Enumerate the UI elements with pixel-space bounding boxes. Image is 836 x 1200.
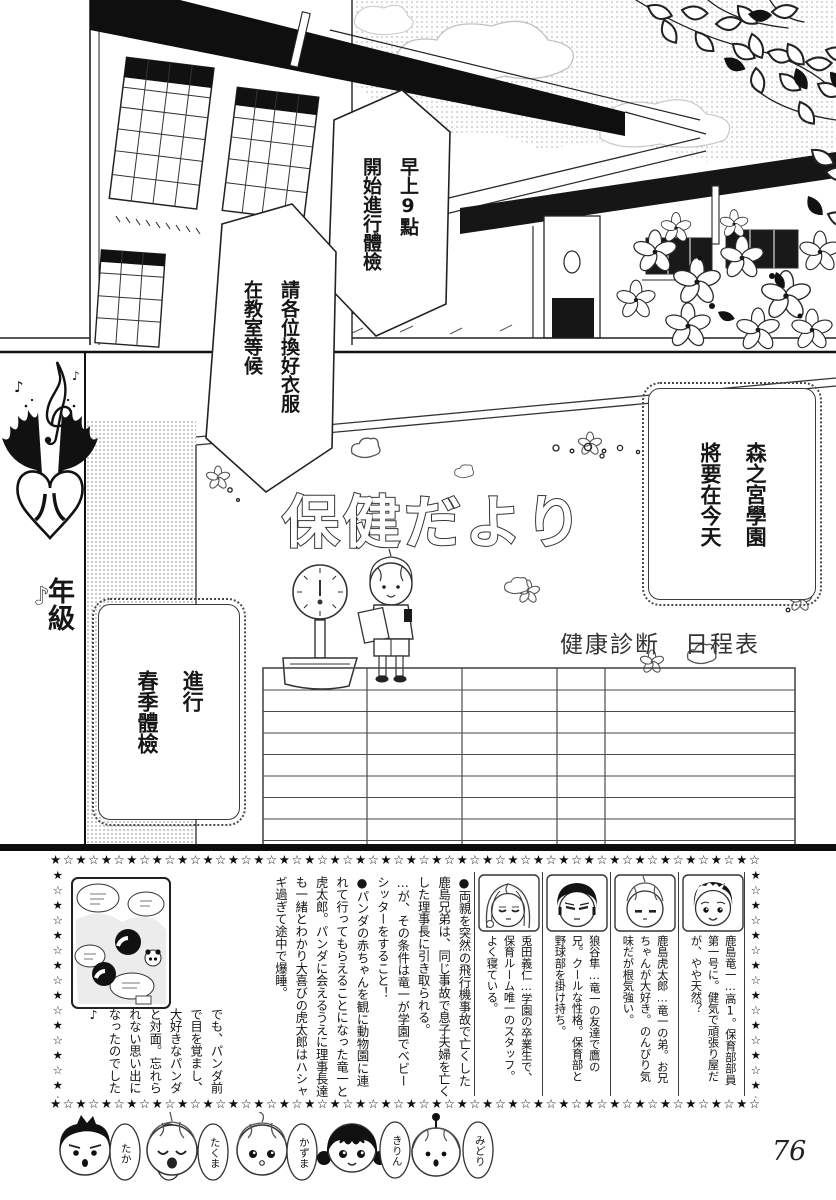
divider <box>610 872 611 1096</box>
profile-text: 鹿島虎太郎…竜一の弟。お兄ちゃんが大好き。のんびり気味だが根気強い。 <box>619 935 670 1087</box>
portrait-usaida <box>478 874 540 932</box>
wing-icon <box>2 410 42 474</box>
chibi-name-takuma: たくま <box>206 1124 222 1182</box>
profile-kashima-kotaro: 鹿島虎太郎…竜一の弟。お兄ちゃんが大好き。のんびり気味だが根気強い。 <box>612 872 678 1098</box>
divider <box>542 872 543 1096</box>
divider <box>474 872 475 1096</box>
caption-checkup-text: 進行 春季體檢 <box>124 670 214 754</box>
chibi-takuma <box>147 1112 197 1175</box>
bubble-instruction-text: 請各位換好衣服 在教室等候 <box>216 232 324 460</box>
portrait-ryuichi <box>682 874 744 932</box>
grade-number: 八 <box>34 488 67 526</box>
portrait-kotaro <box>614 874 676 932</box>
chibi-name-midori: みどり <box>471 1122 487 1180</box>
music-note-icon: ♪ <box>72 369 80 383</box>
chibi-name-taka: たか <box>117 1126 133 1180</box>
manga-page: 保健だより <box>0 0 836 1200</box>
speech-bubble-time: 早上9點 開始進行體檢 <box>324 86 454 341</box>
schedule-caption: 健康診断 日程表 <box>560 625 760 659</box>
star-border-bottom: ★☆★☆★☆★☆★☆★☆★☆★☆★☆★☆★☆★☆★☆★☆★☆★☆★☆★☆★☆★☆… <box>50 1096 762 1111</box>
star-border-right: ★☆★☆★☆★☆★☆★☆★☆★☆★☆ <box>748 868 762 1098</box>
child-illustration <box>358 549 413 683</box>
wing-icon <box>58 410 98 474</box>
page-number: 76 <box>772 1136 806 1167</box>
star-border-top: ★☆★☆★☆★☆★☆★☆★☆★☆★☆★☆★☆★☆★☆★☆★☆★☆★☆★☆★☆★☆… <box>50 852 762 867</box>
schedule-table <box>263 668 795 846</box>
music-note-icon: ♪ <box>14 378 24 396</box>
speech-bubble-instruction: 請各位換好衣服 在教室等候 <box>200 196 340 496</box>
profile-kamitani-hayato: 狼谷隼…竜一の友達で鷹の兄。クールな性格。保育部と野球部を掛け持ち。 <box>544 872 610 1098</box>
story-synopsis: ●両親を突然の飛行機事故で亡くした鹿島兄弟は、同じ事故で息子夫婦を亡くした理事長… <box>228 876 474 1098</box>
caption-checkup: 進行 春季體檢 <box>98 604 240 820</box>
profile-kashima-ryuichi: 鹿島竜一…高1。保育部部員第一号に。健気で頑張り屋だが、やや天然？ <box>680 872 746 1098</box>
profile-text: 鹿島竜一…高1。保育部部員第一号に。健気で頑張り屋だが、やや天然？ <box>687 935 738 1087</box>
cloud <box>354 5 413 34</box>
chibi-kazuma <box>237 1112 287 1175</box>
caption-school-text: 森之宮學園 將要在今天 <box>687 442 777 547</box>
chibi-midori <box>412 1113 460 1176</box>
chibi-lineup <box>40 1112 510 1200</box>
profile-text: 兎田義仁…学園の卒業生で、保育ルーム唯一のスタッフ。よく寝ている。 <box>483 935 534 1087</box>
chibi-name-kazuma: かずま <box>295 1124 311 1182</box>
scale-illustration <box>283 565 357 689</box>
story-synopsis-tail: でも、パンダ前で目を覚まし、大好きなパンダと対面。忘れられない思い出になったので… <box>58 1008 226 1098</box>
caption-school: 森之宮學園 將要在今天 <box>648 388 816 600</box>
profile-text: 狼谷隼…竜一の友達で鷹の兄。クールな性格。保育部と野球部を掛け持ち。 <box>551 935 602 1087</box>
bubble-time-text: 早上9點 開始進行體檢 <box>338 116 440 311</box>
divider <box>678 872 679 1096</box>
portrait-hayato <box>546 874 608 932</box>
poster-title: 保健だより <box>282 490 586 556</box>
recap-panel-thumbnail <box>70 876 172 1010</box>
grade-suffix: 年級 <box>22 556 78 652</box>
profile-usaida-yoshihito: 兎田義仁…学園の卒業生で、保育ルーム唯一のスタッフ。よく寝ている。 <box>476 872 542 1098</box>
chibi-name-kirin: きりん <box>388 1122 404 1180</box>
section-divider <box>0 844 836 851</box>
chibi-kirin <box>317 1124 387 1172</box>
